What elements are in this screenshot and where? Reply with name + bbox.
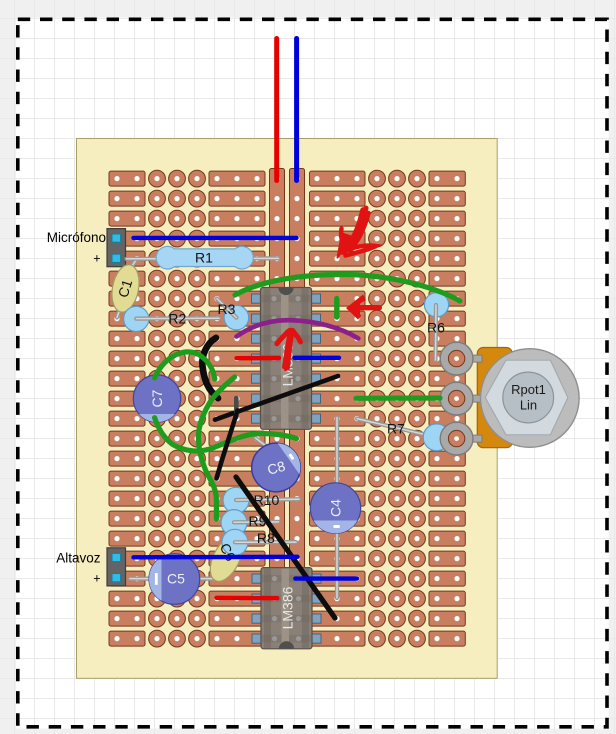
svg-text:Micrófono: Micrófono xyxy=(47,230,106,245)
svg-text:R2: R2 xyxy=(168,311,186,327)
svg-text:Lin: Lin xyxy=(520,398,537,413)
svg-text:R3: R3 xyxy=(218,301,236,317)
svg-text:C7: C7 xyxy=(149,389,165,407)
svg-text:LM386: LM386 xyxy=(280,586,296,629)
svg-text:R7: R7 xyxy=(387,421,405,437)
svg-text:C5: C5 xyxy=(167,571,185,587)
svg-text:C4: C4 xyxy=(328,499,344,517)
svg-text:Altavoz: Altavoz xyxy=(56,550,101,565)
svg-text:+: + xyxy=(93,251,100,265)
svg-text:Rpot1: Rpot1 xyxy=(511,382,546,397)
svg-text:R1: R1 xyxy=(195,250,213,266)
svg-text:+: + xyxy=(93,572,100,586)
svg-text:R6: R6 xyxy=(427,319,445,335)
